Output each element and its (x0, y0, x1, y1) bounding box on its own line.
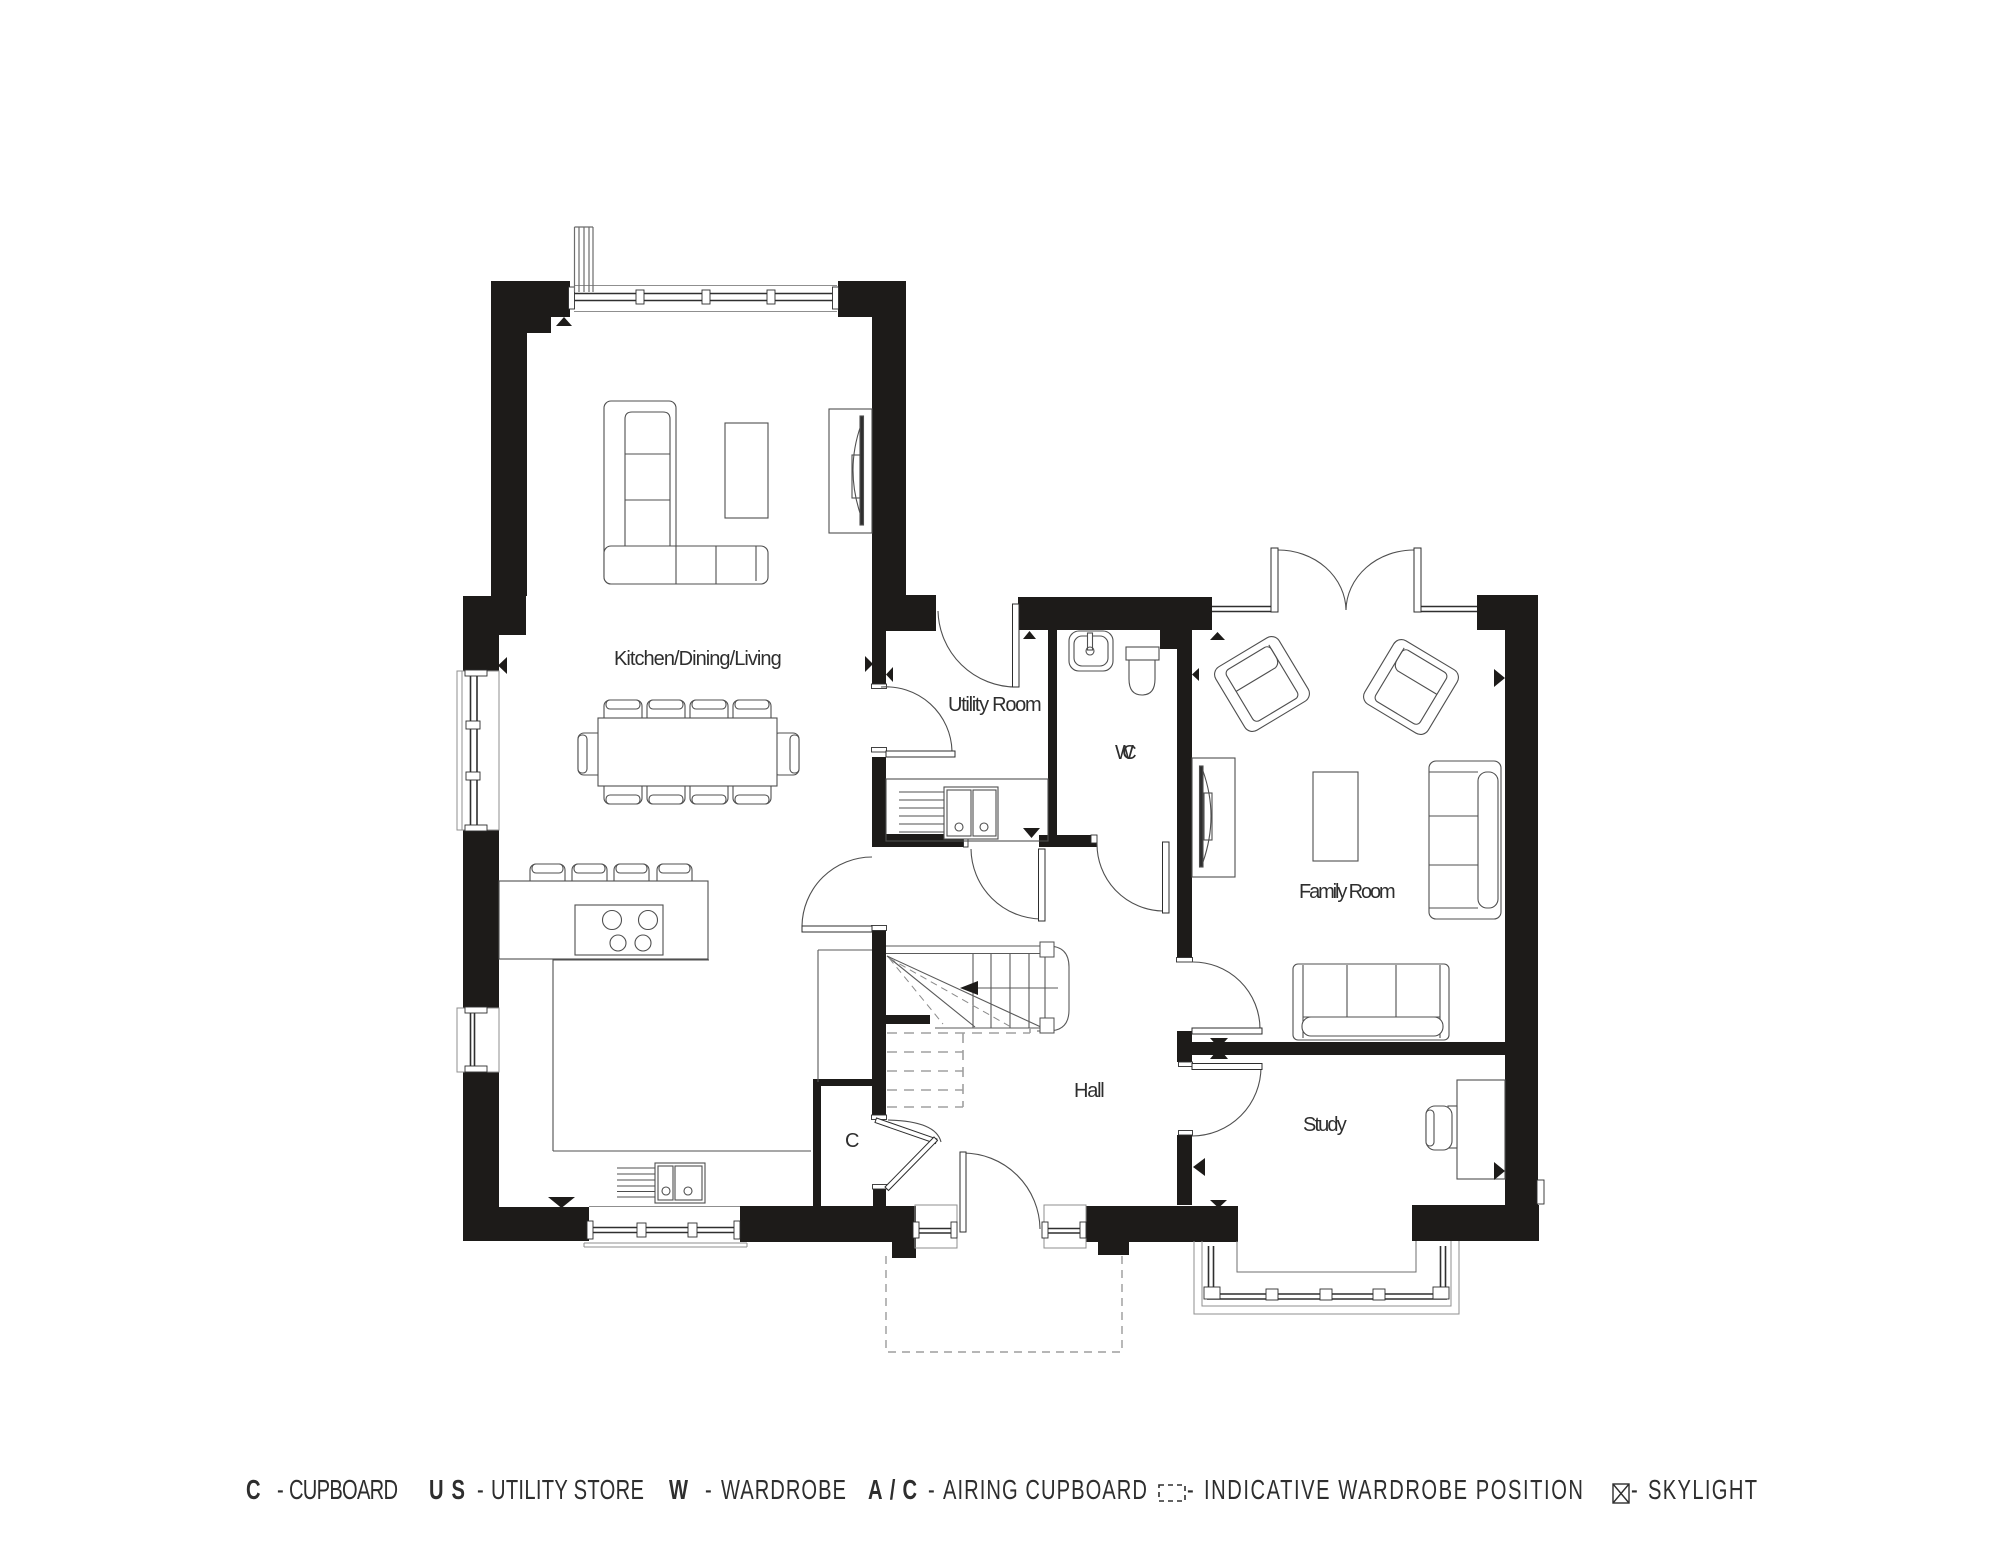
svg-text:-: - (928, 1475, 935, 1506)
svg-text:CUPBOARD: CUPBOARD (289, 1475, 398, 1506)
svg-text:US: US (429, 1475, 465, 1506)
svg-text:Hall: Hall (1074, 1080, 1105, 1102)
svg-text:-: - (705, 1475, 712, 1506)
svg-text:SKYLIGHT: SKYLIGHT (1648, 1475, 1757, 1506)
svg-text:WC: WC (1115, 742, 1137, 764)
svg-text:Family Room: Family Room (1299, 881, 1396, 903)
svg-text:C: C (845, 1130, 860, 1152)
svg-text:W: W (669, 1475, 688, 1506)
svg-text:-: - (477, 1475, 484, 1506)
svg-text:-: - (1631, 1475, 1638, 1506)
svg-text:AIRING CUPBOARD: AIRING CUPBOARD (943, 1475, 1147, 1506)
svg-text:A/C: A/C (868, 1475, 917, 1506)
svg-text:Study: Study (1303, 1114, 1347, 1136)
svg-text:-: - (277, 1475, 284, 1506)
svg-text:INDICATIVE WARDROBE POSITION: INDICATIVE WARDROBE POSITION (1204, 1475, 1583, 1506)
svg-text:Utility Room: Utility Room (948, 694, 1042, 716)
svg-text:Kitchen/Dining/Living: Kitchen/Dining/Living (614, 648, 782, 670)
svg-text:-: - (1187, 1475, 1194, 1506)
svg-text:C: C (246, 1475, 261, 1506)
svg-text:WARDROBE: WARDROBE (721, 1475, 846, 1506)
svg-text:UTILITY STORE: UTILITY STORE (491, 1475, 644, 1506)
